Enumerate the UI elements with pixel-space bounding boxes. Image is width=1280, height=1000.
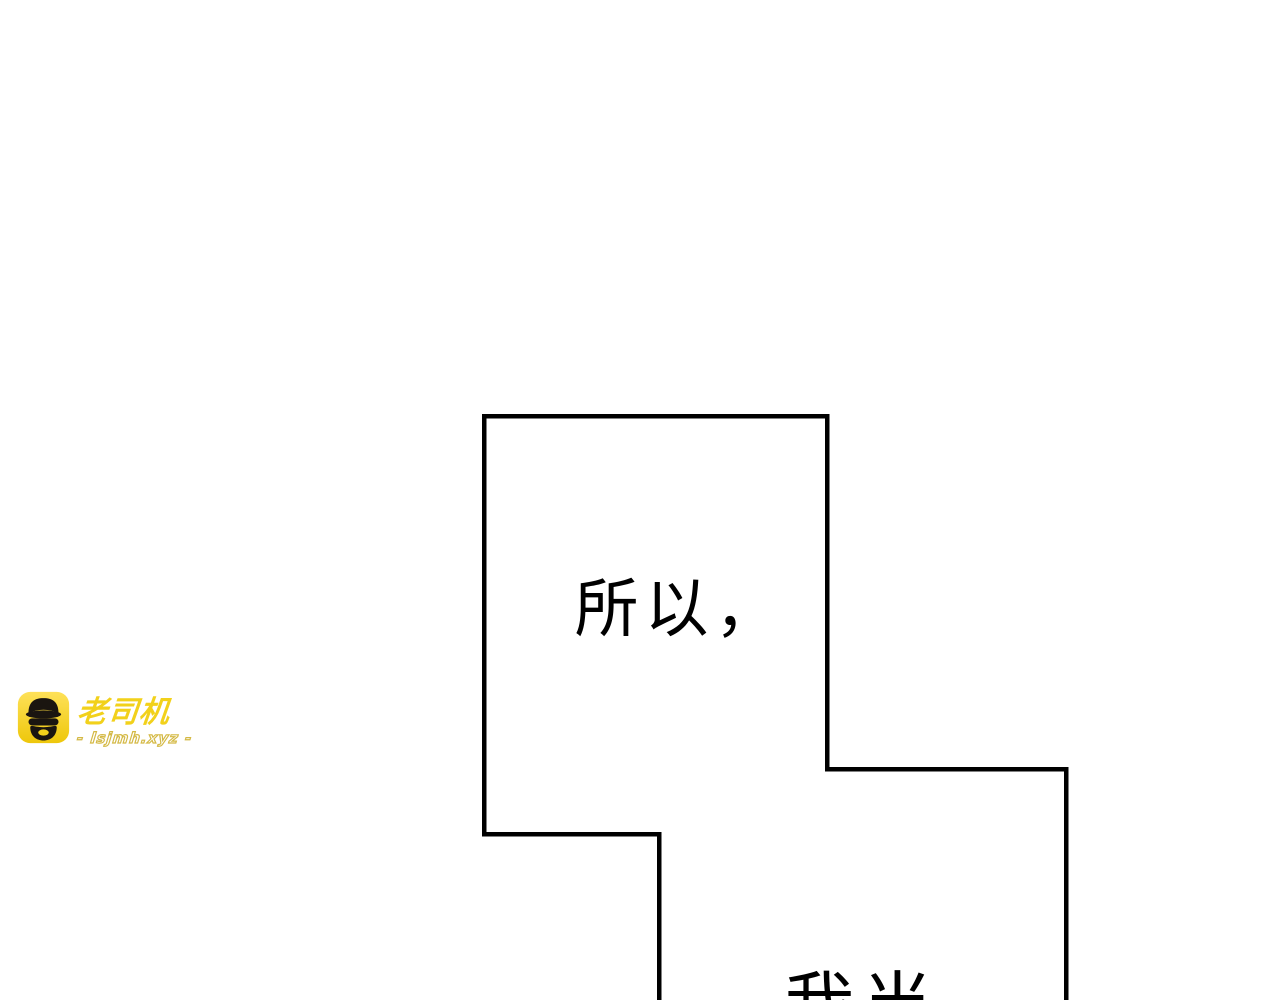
watermark-brand-text: 老司机 — [75, 698, 193, 728]
mouth — [38, 729, 49, 735]
panel-outlines — [0, 0, 1280, 1000]
watermark-text-block: 老司机 - lsjmh.xyz - — [77, 691, 192, 746]
panel1-dialogue-text: 所以， — [484, 578, 851, 642]
site-watermark: 老司机 - lsjmh.xyz - — [17, 691, 192, 746]
sunglasses — [28, 718, 58, 725]
driver-face-icon — [17, 691, 70, 744]
comic-page: 所以， 我当 老司机 - lsjmh.xyz - — [0, 0, 1280, 1000]
panel-border-path — [484, 416, 1066, 1000]
watermark-site-text: - lsjmh.xyz - — [76, 731, 193, 746]
cap-visor — [26, 710, 61, 718]
panel2-dialogue-text-partial: 我当 — [659, 970, 1066, 1000]
